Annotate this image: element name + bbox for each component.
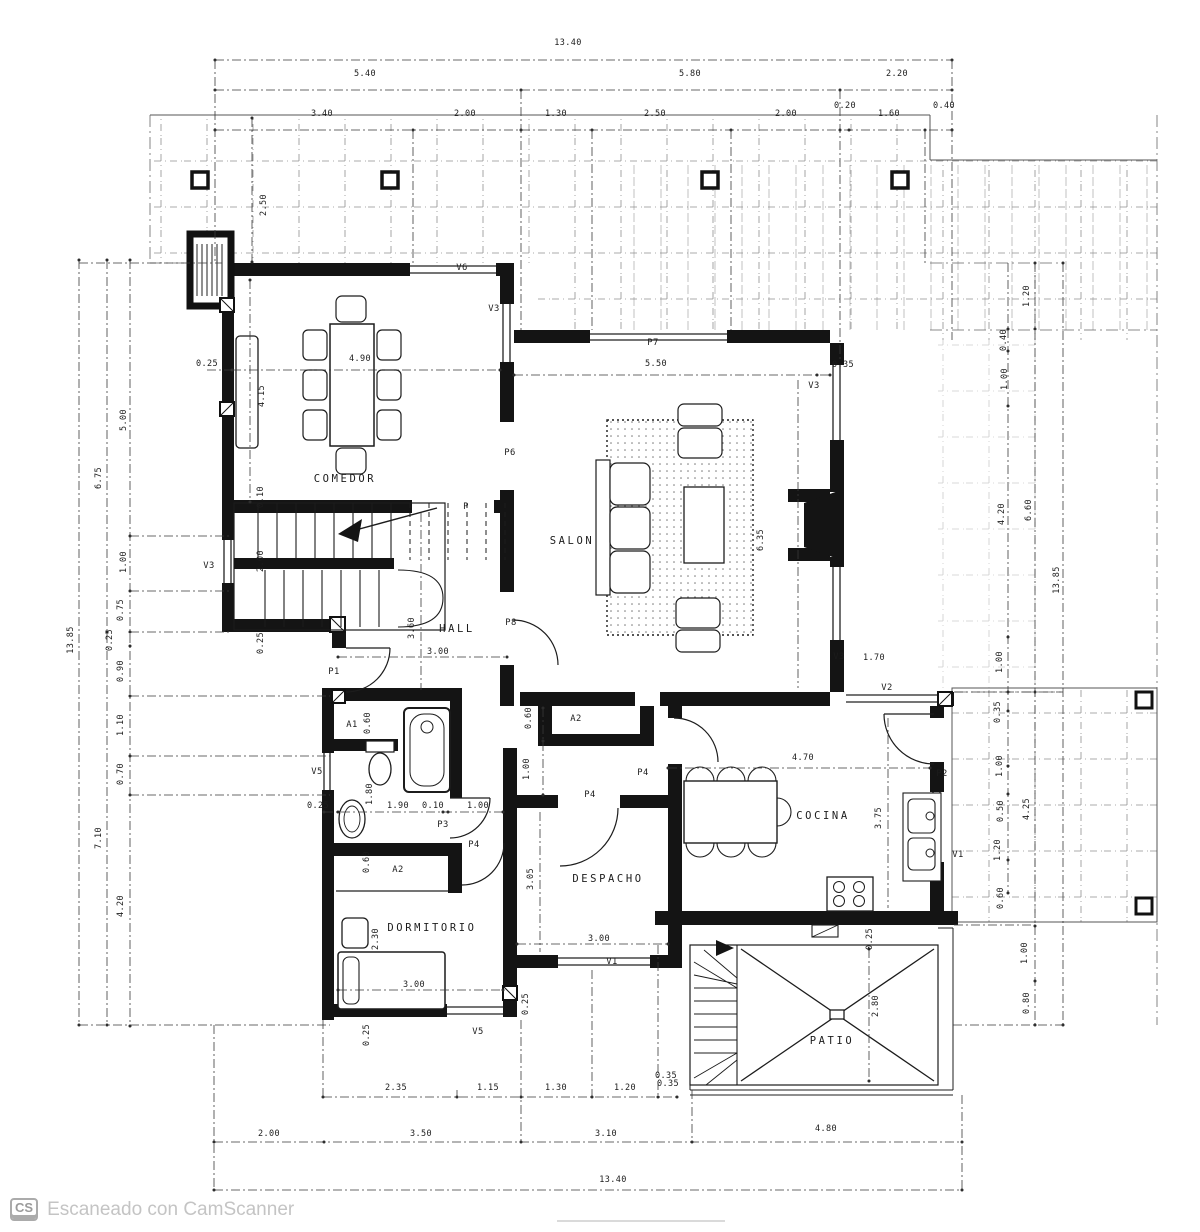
dimension-label: 2.00 xyxy=(256,550,266,572)
dimension-label: 0.40 xyxy=(933,101,955,111)
opening-tag: V6 xyxy=(456,263,467,273)
dimension-label: 6.75 xyxy=(94,467,104,489)
room-label: COCINA xyxy=(796,810,850,822)
dimension-label: 2.30 xyxy=(371,928,381,950)
door-p8 xyxy=(513,620,558,665)
armchair-top xyxy=(678,404,722,426)
scanned-floor-plan-page: 13.405.405.802.203.402.001.302.502.000.2… xyxy=(0,0,1200,1232)
dimension-label: 0.25 xyxy=(362,1024,372,1046)
dimension-label: 1.30 xyxy=(545,1083,567,1093)
opening-tag: P8 xyxy=(505,618,516,628)
opening-tag: V3 xyxy=(488,304,499,314)
kitchen-table xyxy=(684,781,777,843)
dimension-label: 5.80 xyxy=(679,69,701,79)
dimension-label: 4.20 xyxy=(116,895,126,917)
dimension-label: 3.00 xyxy=(427,647,449,657)
dimension-label: 1.20 xyxy=(614,1083,636,1093)
opening-tag: V3 xyxy=(203,561,214,571)
opening-tag: V5 xyxy=(311,767,322,777)
dimension-label: 0.60 xyxy=(363,712,373,734)
scan-artifact-line xyxy=(557,1220,725,1222)
dimension-label: 3.05 xyxy=(526,868,536,890)
dimension-label: 0.25 xyxy=(196,359,218,369)
opening-tag: P1 xyxy=(328,667,339,677)
armchair-bottom xyxy=(676,598,720,628)
opening-tag: P6 xyxy=(504,448,515,458)
dimension-label: 2.35 xyxy=(385,1083,407,1093)
dimension-label: 3.10 xyxy=(595,1129,617,1139)
dimension-label: 0.50 xyxy=(996,800,1006,822)
staircase xyxy=(234,503,505,630)
room-label: DORMITORIO xyxy=(387,922,476,934)
dimension-label: 0.20 xyxy=(834,101,856,111)
salon-set xyxy=(596,404,753,652)
camscanner-logo: CS xyxy=(10,1198,38,1221)
room-label: SALON xyxy=(550,535,595,547)
dimension-label: 0.35 xyxy=(993,701,1003,723)
door-p2 xyxy=(884,714,934,764)
dimension-label: 1.00 xyxy=(1000,368,1010,390)
dimension-label: 0.80 xyxy=(1022,992,1032,1014)
dimension-label: 1.90 xyxy=(387,801,409,811)
dimension-label: 1.70 xyxy=(863,653,885,663)
dimension-label: 0.75 xyxy=(116,599,126,621)
dimension-label: 7.10 xyxy=(94,827,104,849)
dimension-label: 0.90 xyxy=(116,660,126,682)
room-label: COMEDOR xyxy=(314,473,376,485)
opening-tag: V5 xyxy=(472,1027,483,1037)
dimension-label: 1.00 xyxy=(467,801,489,811)
patio-drain xyxy=(830,1010,844,1019)
door-p4-despacho xyxy=(560,808,618,866)
room-label: HALL xyxy=(439,623,475,635)
dimension-label: 2.50 xyxy=(644,109,666,119)
dimension-label: 1.80 xyxy=(365,783,375,805)
opening-tag: A2 xyxy=(392,865,403,875)
dimension-label: 1.00 xyxy=(1020,942,1030,964)
opening-tag: P3 xyxy=(437,820,448,830)
stove xyxy=(827,877,873,911)
dimension-label: 1.00 xyxy=(995,755,1005,777)
toilet-tank xyxy=(366,741,394,752)
opening-tag: P7 xyxy=(647,338,658,348)
sideboard xyxy=(236,336,258,448)
sofa-back xyxy=(596,460,610,595)
opening-tag: V2 xyxy=(881,683,892,693)
patio xyxy=(690,928,953,1095)
dimension-label: 0.60 xyxy=(524,707,534,729)
room-label: DESPACHO xyxy=(572,873,643,885)
toilet xyxy=(369,753,391,785)
dimension-label: 4.80 xyxy=(815,1124,837,1134)
dimension-label: 13.85 xyxy=(1052,566,1062,594)
dining-table xyxy=(330,324,374,446)
dimension-label: 0.25 xyxy=(105,629,115,651)
dimension-label: 0.10 xyxy=(422,801,444,811)
vent xyxy=(812,925,838,937)
floor-plan-drawing: 13.405.405.802.203.402.001.302.502.000.2… xyxy=(0,0,1200,1232)
dimension-label: 6.60 xyxy=(1024,499,1034,521)
opening-tag: V1 xyxy=(952,850,963,860)
dimension-label: 13.85 xyxy=(66,626,76,654)
dimension-label: 1.00 xyxy=(522,758,532,780)
fireplace xyxy=(788,489,844,561)
dimension-label: 5.00 xyxy=(119,409,129,431)
dimension-label: 0.10 xyxy=(256,486,266,508)
opening-tag: V3 xyxy=(808,381,819,391)
opening-tag: P xyxy=(463,502,469,512)
dimension-label: 4.70 xyxy=(792,753,814,763)
opening-tag: P4 xyxy=(584,790,595,800)
watermark-text: Escaneado con CamScanner xyxy=(47,1199,294,1221)
dimension-label: 0.70 xyxy=(116,763,126,785)
opening-tag: A2 xyxy=(570,714,581,724)
dimension-label: 3.00 xyxy=(588,934,610,944)
opening-tag: P2 xyxy=(936,769,947,779)
door-p4-kitchen xyxy=(674,718,718,762)
dimension-label: 2.20 xyxy=(886,69,908,79)
dimension-label: 2.00 xyxy=(454,109,476,119)
dimension-label: 5.50 xyxy=(645,359,667,369)
dimension-label: 4.25 xyxy=(1022,798,1032,820)
dimension-label: 1.00 xyxy=(995,651,1005,673)
chimney xyxy=(190,234,231,306)
dimension-label: 0.25 xyxy=(865,928,875,950)
dimension-label: 0.25 xyxy=(307,801,329,811)
opening-tag: P4 xyxy=(468,840,479,850)
dimension-label: 2.00 xyxy=(258,1129,280,1139)
opening-tag: P4 xyxy=(637,768,648,778)
dimension-label: 1.15 xyxy=(477,1083,499,1093)
dimension-label: 0.35 xyxy=(832,360,854,370)
dimension-label: 1.00 xyxy=(119,551,129,573)
exterior-stairs xyxy=(694,940,737,1085)
dimension-label: 4.20 xyxy=(997,503,1007,525)
dimension-label: 3.75 xyxy=(874,807,884,829)
pillow xyxy=(343,957,359,1004)
dimension-label: 4.90 xyxy=(349,354,371,364)
dimension-label: 5.40 xyxy=(354,69,376,79)
dimension-label: 3.00 xyxy=(403,980,425,990)
coffee-table xyxy=(684,487,724,563)
bathtub-drain xyxy=(421,721,433,733)
dimension-label: 1.30 xyxy=(545,109,567,119)
dimension-label: 0.60 xyxy=(362,851,372,873)
dimension-label: 1.60 xyxy=(878,109,900,119)
opening-tag: A1 xyxy=(346,720,357,730)
dimension-label: 2.00 xyxy=(775,109,797,119)
dimension-label: 4.15 xyxy=(257,385,267,407)
dimension-label: 2.50 xyxy=(259,194,269,216)
dimension-label: 0.25 xyxy=(256,632,266,654)
room-label: PATIO xyxy=(810,1035,855,1047)
dimension-label: 0.25 xyxy=(521,993,531,1015)
dimension-label: 1.20 xyxy=(993,839,1003,861)
stair-arrow xyxy=(716,940,734,956)
opening-tag: V1 xyxy=(606,957,617,967)
dimension-label: 1.10 xyxy=(116,714,126,736)
dimension-label: 13.40 xyxy=(554,38,582,48)
nightstand xyxy=(342,918,368,948)
dimension-label: 3.60 xyxy=(407,617,417,639)
opening-tag: V3 xyxy=(833,652,844,662)
dimension-label: 3.50 xyxy=(410,1129,432,1139)
door-p1 xyxy=(346,648,390,692)
dimension-label: 1.20 xyxy=(1022,285,1032,307)
dimension-label: 0.35 xyxy=(655,1071,677,1081)
camscanner-watermark: CS Escaneado con CamScanner xyxy=(10,1198,294,1221)
dimension-label: 3.40 xyxy=(311,109,333,119)
dimension-label: 0.40 xyxy=(999,329,1009,351)
dimension-label: 6.35 xyxy=(756,529,766,551)
dimension-label: 2.80 xyxy=(871,995,881,1017)
dimension-label: 13.40 xyxy=(599,1175,627,1185)
dimension-label: 0.60 xyxy=(996,887,1006,909)
